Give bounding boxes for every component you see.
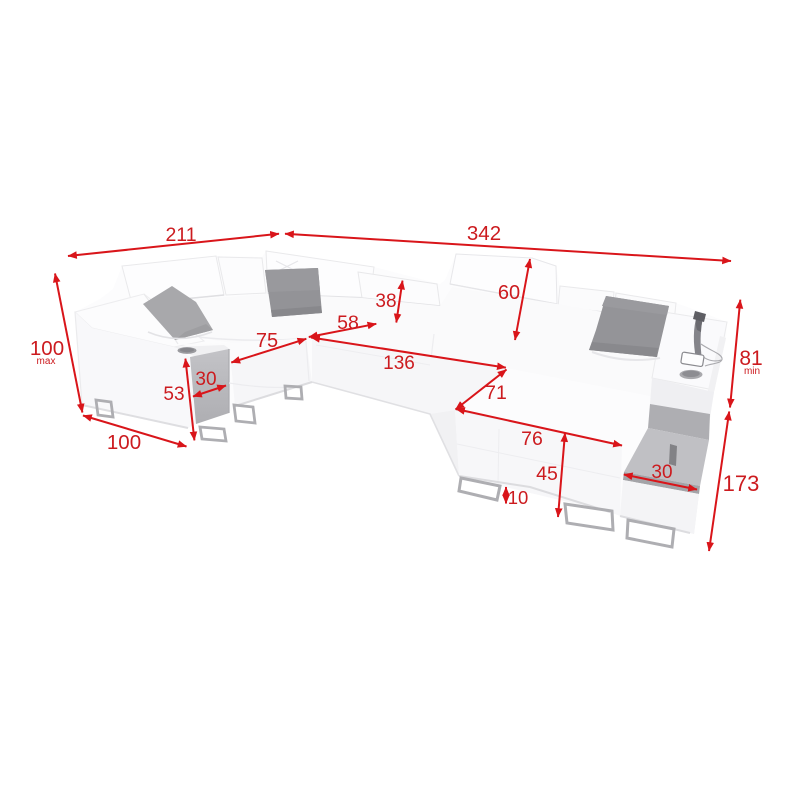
- svg-text:min: min: [744, 366, 760, 377]
- svg-text:71: 71: [485, 382, 507, 404]
- svg-text:75: 75: [256, 330, 278, 352]
- svg-text:max: max: [37, 356, 56, 367]
- svg-text:58: 58: [337, 312, 359, 334]
- svg-text:76: 76: [521, 428, 543, 450]
- svg-text:100: 100: [107, 431, 141, 454]
- svg-text:45: 45: [536, 463, 558, 485]
- svg-text:30: 30: [195, 369, 216, 390]
- svg-text:10: 10: [508, 487, 529, 508]
- svg-text:173: 173: [723, 471, 760, 496]
- svg-text:342: 342: [467, 222, 501, 245]
- svg-text:136: 136: [383, 353, 415, 374]
- svg-text:53: 53: [163, 384, 184, 405]
- svg-text:60: 60: [498, 282, 520, 304]
- svg-text:30: 30: [651, 462, 672, 483]
- svg-text:211: 211: [165, 224, 196, 246]
- svg-text:38: 38: [375, 291, 396, 312]
